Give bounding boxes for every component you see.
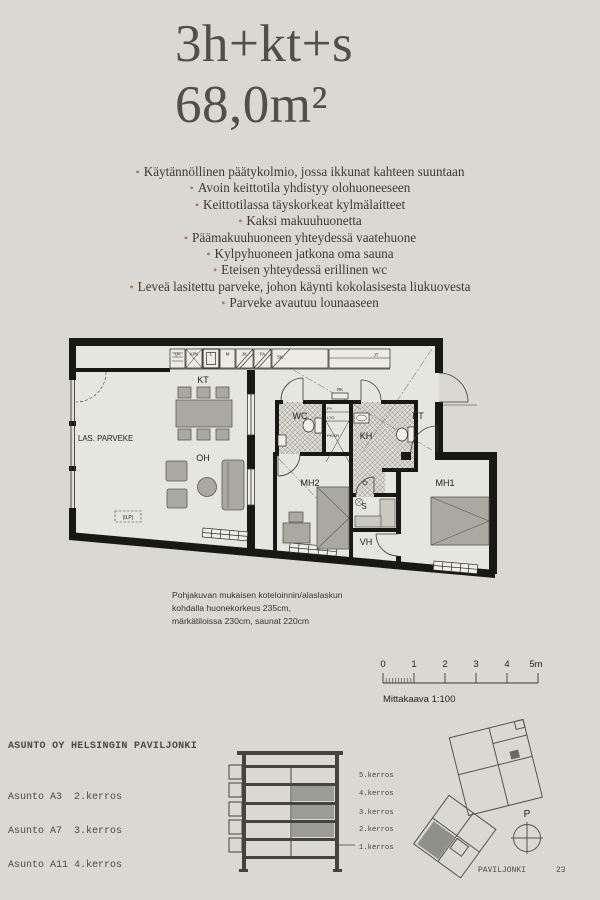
svg-text:4.kerros: 4.kerros (359, 790, 394, 798)
label-kt: KT (197, 375, 209, 385)
brochure-page: 3h+kt+s 68,0m² •Käytännöllinen päätykolm… (0, 0, 600, 900)
bullet-icon: • (135, 165, 139, 179)
feature-item: •Keittotilassa täyskorkeat kylmälaitteet (40, 197, 560, 213)
feature-item: •Kaksi makuuhuonetta (40, 213, 560, 229)
apartment-list: Asunto A3 2.kerros Asunto A7 3.kerros As… (8, 769, 122, 894)
scale-bar: 0 1 2 3 4 5m Mittakaava 1:100 (378, 655, 543, 707)
svg-text:5.kerros: 5.kerros (359, 772, 394, 780)
apartment-type: 3h+kt+s (175, 14, 353, 75)
svg-text:3: 3 (473, 659, 478, 670)
label-ilp: (ILP) (123, 515, 134, 521)
compass (511, 822, 543, 854)
note-line: Pohjakuvan mukaisen koteloinnin/alaslask… (172, 589, 343, 602)
scale-numbers: 0 1 2 3 4 5m (380, 659, 542, 670)
label-m: M (226, 352, 230, 357)
feature-item: •Päämakuuhuoneen yhteydessä vaatehuone (40, 230, 560, 246)
north-label: P (524, 809, 531, 820)
project-name: ASUNTO OY HELSINGIN PAVILJONKI (8, 741, 197, 752)
feature-item: •Eteisen yhteydessä erillinen wc (40, 262, 560, 278)
bullet-icon: • (129, 280, 133, 294)
bullet-icon: • (206, 247, 210, 261)
bullet-icon: • (190, 181, 194, 195)
site-caption: PAVILJONKI (478, 866, 526, 875)
apartment-row: Asunto A3 2.kerros (8, 792, 122, 803)
scale-caption: Mittakaava 1:100 (383, 694, 455, 705)
site-building-north (449, 720, 542, 816)
apartment-location-marker (417, 821, 454, 859)
apartment-area: 68,0m² (175, 75, 353, 136)
feature-list: •Käytännöllinen päätykolmio, jossa ikkun… (40, 164, 560, 312)
label-jt: JT (374, 353, 379, 358)
svg-text:2: 2 (442, 659, 447, 670)
feature-item: •Kylpyhuoneen jatkona oma sauna (40, 246, 560, 262)
feature-item: •Leveä lasitettu parveke, johon käynti k… (40, 279, 560, 295)
bullet-icon: • (221, 296, 225, 310)
label-balcony: LAS. PARVEKE (78, 434, 133, 443)
label-vh: VH (360, 537, 373, 547)
label-wc: WC (293, 411, 308, 421)
feature-item: •Avoin keittotila yhdistyy olohuoneeseen (40, 180, 560, 196)
svg-text:3.kerros: 3.kerros (359, 809, 394, 817)
svg-text:1: 1 (411, 659, 416, 670)
label-rk: RK (337, 387, 343, 392)
floor-plan: KT OH LAS. PARVEKE WC KH ET MH2 MH1 S VH… (60, 325, 500, 590)
svg-text:1.kerros: 1.kerros (359, 844, 394, 852)
label-sk: SK (277, 355, 283, 360)
bullet-icon: • (195, 198, 199, 212)
svg-text:0: 0 (380, 659, 385, 670)
scale-ticks (383, 673, 538, 683)
svg-text:4: 4 (504, 659, 509, 670)
label-pkkr: PK/KR (327, 433, 339, 438)
label-mh2: MH2 (300, 478, 319, 488)
highlighted-floors (292, 786, 334, 837)
label-ua: UA (175, 352, 181, 357)
label-apk: APK (190, 352, 199, 357)
label-jk: JK (242, 352, 247, 357)
label-lto: LTO (327, 415, 334, 420)
page-number: 23 (556, 866, 566, 875)
balcony-stack (229, 765, 242, 852)
bullet-icon: • (184, 231, 188, 245)
apartment-row: Asunto A11 4.kerros (8, 860, 122, 871)
note-line: märkätiloissa 230cm, saunat 220cm (172, 615, 343, 628)
note-line: kohdalla huonekorkeus 235cm, (172, 602, 343, 615)
bullet-icon: • (238, 214, 242, 228)
floor-labels: 5.kerros 4.kerros 3.kerros 2.kerros 1.ke… (359, 772, 394, 852)
label-pa: PA (260, 352, 265, 357)
svg-text:5m: 5m (529, 659, 542, 670)
apartment-row: Asunto A7 3.kerros (8, 826, 122, 837)
page-title: 3h+kt+s 68,0m² (175, 14, 353, 136)
feature-item: •Käytännöllinen päätykolmio, jossa ikkun… (40, 164, 560, 180)
feature-item: •Parveke avautuu lounaaseen (40, 295, 560, 311)
svg-text:2.kerros: 2.kerros (359, 826, 394, 834)
label-oh: OH (196, 453, 210, 463)
label-et: ET (412, 411, 424, 421)
label-py: PY (327, 406, 333, 411)
label-mh1: MH1 (435, 478, 454, 488)
ceiling-height-notes: Pohjakuvan mukaisen koteloinnin/alaslask… (172, 589, 343, 627)
label-s: S (361, 502, 366, 511)
building-section: 5.kerros 4.kerros 3.kerros 2.kerros 1.ke… (225, 737, 405, 887)
bullet-icon: • (213, 263, 217, 277)
label-kh: KH (360, 431, 373, 441)
